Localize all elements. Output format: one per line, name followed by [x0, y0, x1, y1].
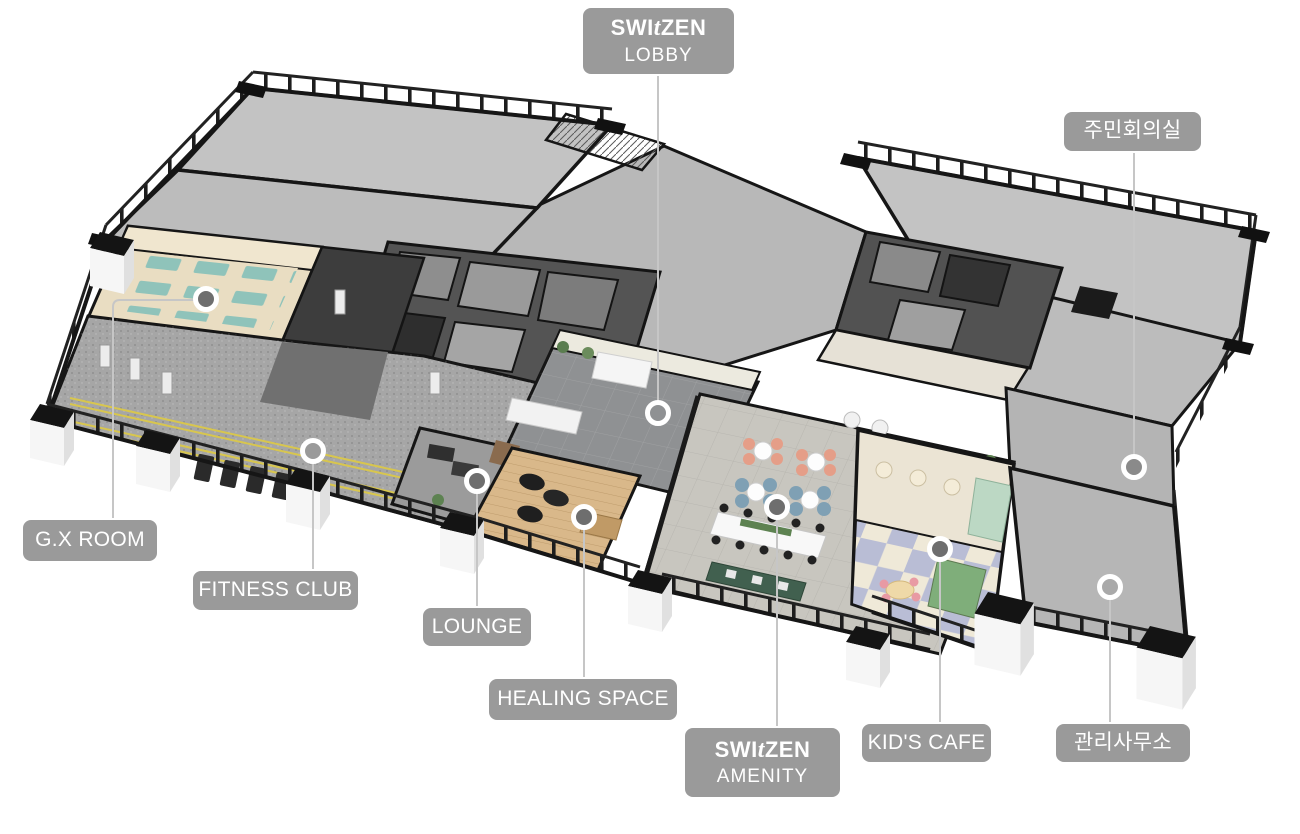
marker-healing-space	[574, 507, 595, 528]
marker-fitness-club	[303, 441, 324, 462]
label-text: LOUNGE	[432, 615, 523, 639]
label-text: LOBBY	[624, 45, 692, 67]
label-kids-cafe: KID'S CAFE	[862, 724, 991, 762]
switzen-logo: SWItZEN	[715, 737, 811, 764]
label-lounge: LOUNGE	[423, 608, 531, 646]
plant	[432, 494, 444, 506]
label-text: AMENITY	[717, 766, 808, 788]
label-management-office: 관리사무소	[1056, 724, 1190, 762]
label-fitness-club: FITNESS CLUB	[193, 571, 358, 610]
label-healing-space: HEALING SPACE	[489, 679, 677, 720]
label-text: 관리사무소	[1074, 731, 1172, 755]
marker-lounge	[467, 471, 488, 492]
marker-gx-room	[196, 289, 217, 310]
plant	[557, 341, 569, 353]
label-text: HEALING SPACE	[497, 687, 669, 711]
marker-lobby	[648, 403, 669, 424]
label-gx-room: G.X ROOM	[23, 520, 157, 561]
floorplan-page: SWItZEN LOBBY 주민회의실 G.X ROOM FITNESS CLU…	[0, 0, 1300, 834]
label-text: KID'S CAFE	[868, 731, 986, 755]
label-text: G.X ROOM	[35, 528, 145, 552]
plant	[582, 347, 594, 359]
label-text: FITNESS CLUB	[198, 578, 352, 602]
switzen-logo: SWItZEN	[611, 15, 707, 42]
marker-amenity	[767, 497, 788, 518]
label-residents-meeting-room: 주민회의실	[1064, 112, 1201, 151]
building-shell	[47, 88, 1256, 654]
label-text: 주민회의실	[1083, 119, 1181, 143]
marker-management-office	[1100, 577, 1121, 598]
marker-kids-cafe	[930, 539, 951, 560]
label-amenity: SWItZEN AMENITY	[685, 728, 840, 797]
kids-table	[880, 578, 921, 603]
label-lobby: SWItZEN LOBBY	[583, 8, 734, 74]
marker-residents-meeting-room	[1124, 457, 1145, 478]
